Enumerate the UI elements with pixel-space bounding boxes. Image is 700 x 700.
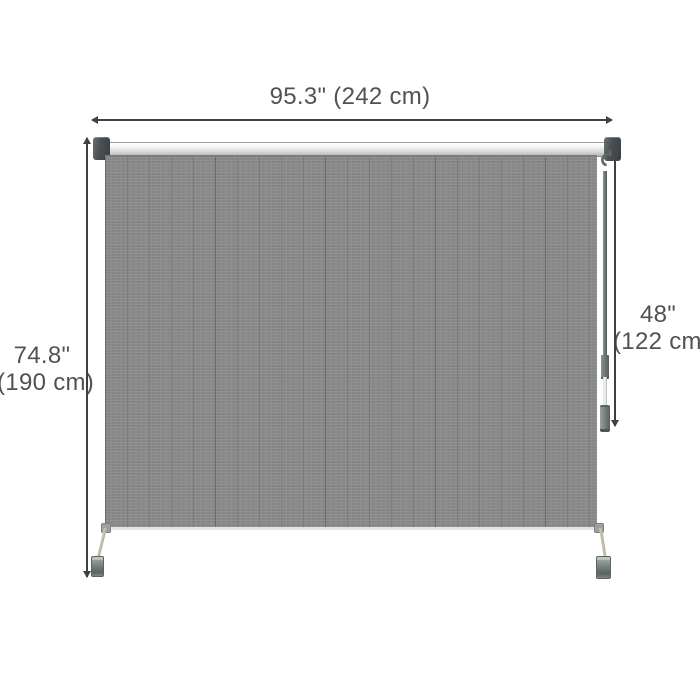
crank-rod [603, 171, 607, 357]
crank-joint [601, 355, 609, 379]
crank-length-metric: (122 cm) [613, 328, 700, 355]
arrowhead-up-icon [83, 137, 91, 144]
crank-length-dimension-line [614, 150, 616, 426]
arrowhead-left-icon [91, 116, 98, 124]
floor-clamp-right [596, 556, 611, 579]
crank-handle-grip [600, 405, 610, 432]
height-dimension-inches: 74.8" [0, 342, 87, 369]
height-dimension-line [86, 138, 88, 577]
crank-lower-rod [603, 377, 607, 406]
product-dimension-diagram: 95.3" (242 cm) 74.8" (190 cm) 48" (122 c… [0, 0, 700, 700]
crank-length-dimension-label: 48" (122 cm) [613, 301, 700, 355]
crank-length-inches: 48" [613, 301, 700, 328]
height-dimension-label: 74.8" (190 cm) [0, 342, 87, 396]
shade-fabric-panel [105, 155, 597, 527]
arrowhead-right-icon [606, 116, 613, 124]
arrowhead-down-icon [83, 571, 91, 578]
width-dimension-line [92, 119, 612, 121]
height-dimension-metric: (190 cm) [0, 369, 87, 396]
floor-clamp-left [91, 556, 104, 577]
width-dimension-label: 95.3" (242 cm) [100, 83, 600, 110]
arrowhead-down-icon [611, 420, 619, 427]
